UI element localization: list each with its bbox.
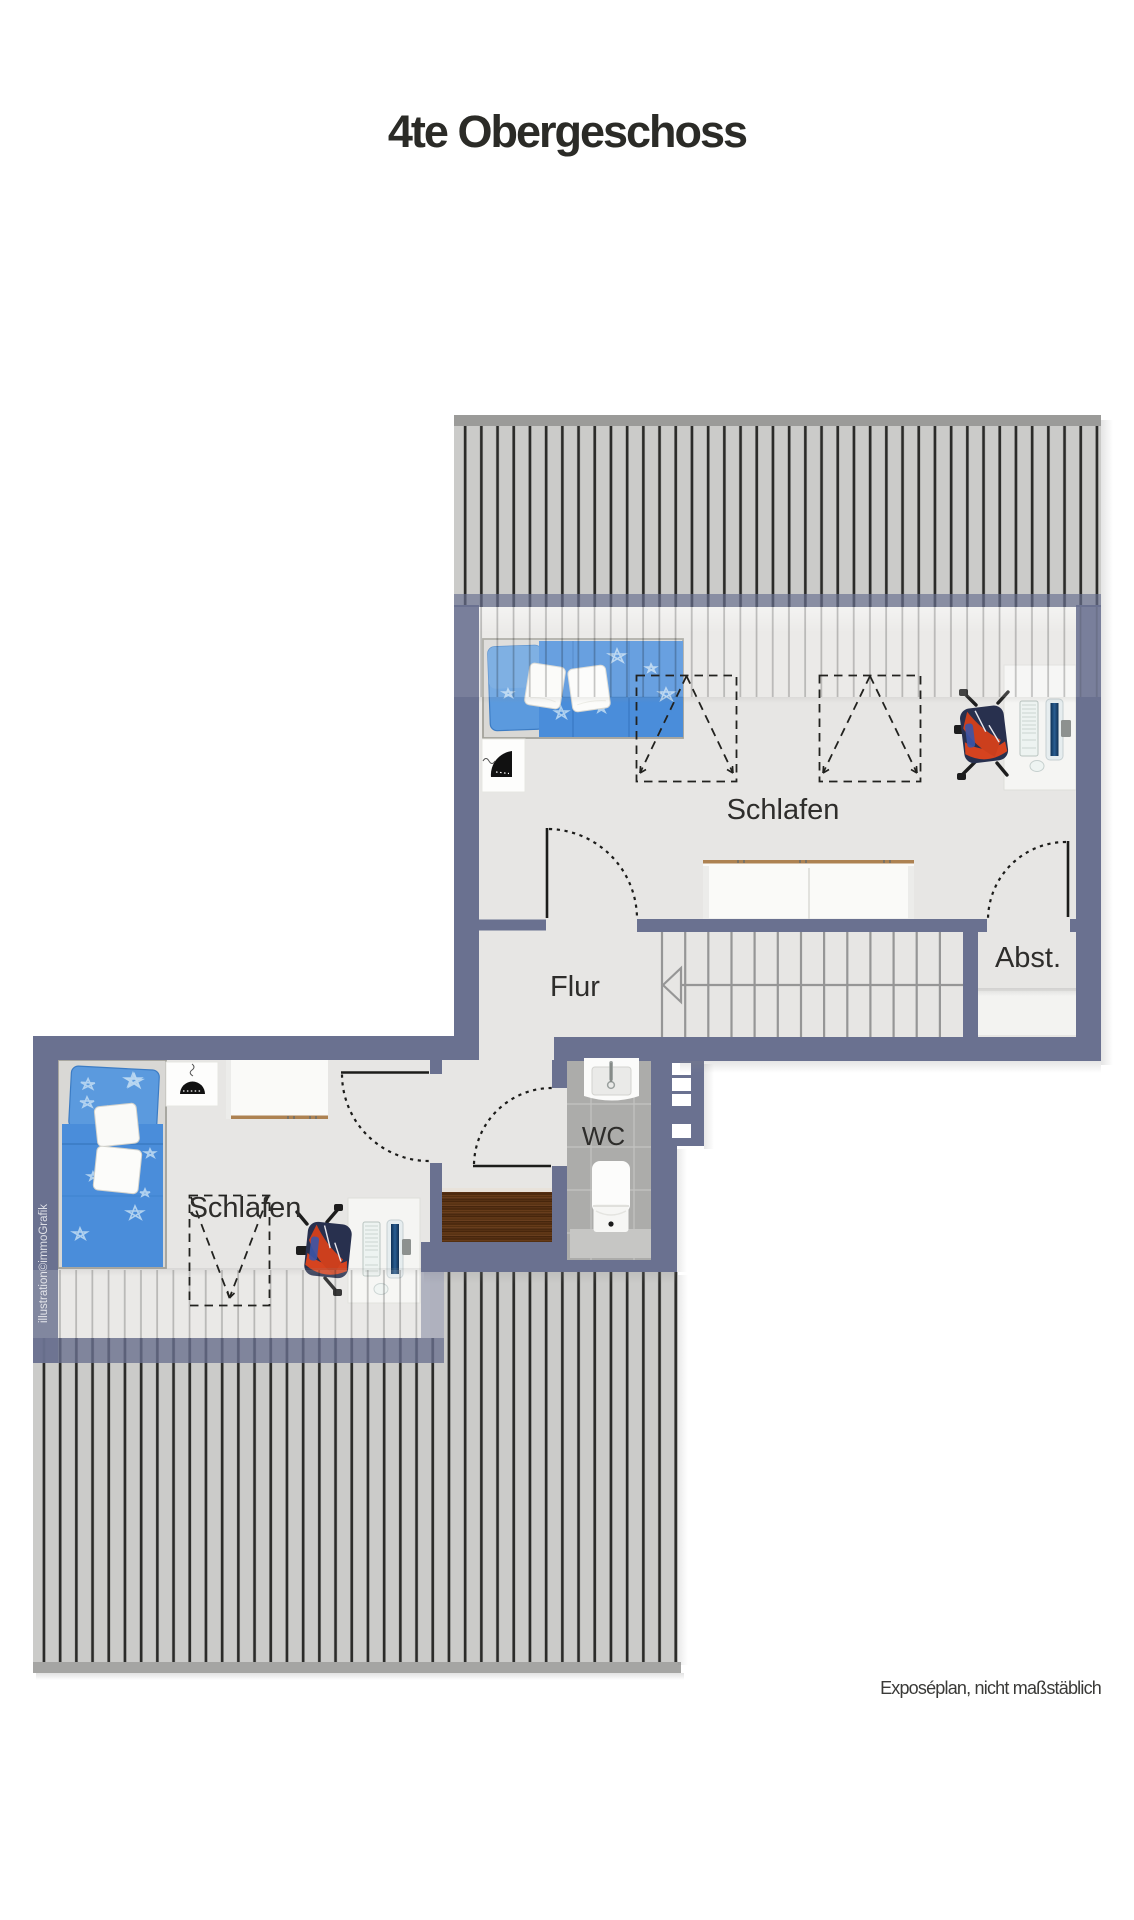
svg-text:Exposéplan, nicht maßstäblich: Exposéplan, nicht maßstäblich (880, 1678, 1101, 1698)
svg-text:Abst.: Abst. (995, 942, 1061, 974)
svg-text:WC: WC (582, 1121, 625, 1151)
svg-text:illustration©immoGrafik: illustration©immoGrafik (38, 1204, 50, 1323)
svg-text:Flur: Flur (550, 971, 600, 1003)
svg-text:4te Obergeschoss: 4te Obergeschoss (388, 106, 747, 157)
svg-text:Schlafen: Schlafen (189, 1192, 302, 1224)
svg-text:Schlafen: Schlafen (727, 794, 840, 826)
